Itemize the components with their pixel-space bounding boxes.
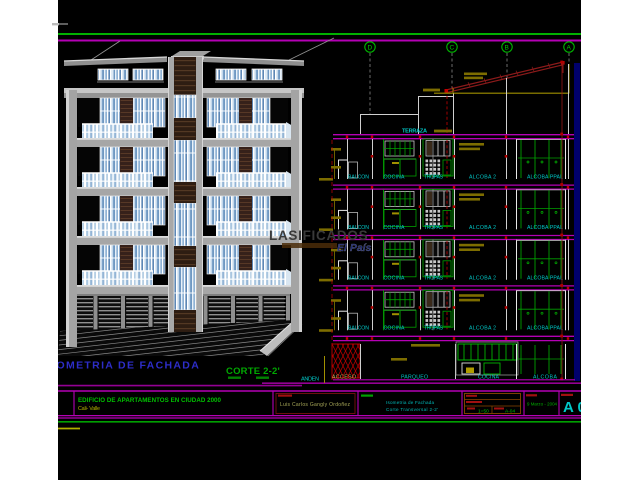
svg-text:Corte Transversal 2-2': Corte Transversal 2-2' <box>386 407 438 412</box>
svg-text:A-04: A-04 <box>505 409 515 415</box>
svg-text:A: A <box>567 45 572 52</box>
svg-text:C: C <box>450 45 455 52</box>
svg-text:EDIFICIO DE APARTAMENTOS EN C: EDIFICIO DE APARTAMENTOS EN CIUDAD 2000 <box>78 397 222 404</box>
svg-text:Luis Carlos Gangly Ordoñez: Luis Carlos Gangly Ordoñez <box>280 402 351 408</box>
svg-text:D: D <box>368 45 373 52</box>
svg-text:CORTE 2-2': CORTE 2-2' <box>226 366 281 377</box>
svg-text:9 Marzo - 2004: 9 Marzo - 2004 <box>527 402 558 407</box>
svg-text:ANDEN: ANDEN <box>301 377 319 383</box>
svg-text:LASIFICADOS: LASIFICADOS <box>269 228 368 243</box>
svg-text:ISOMETRIA DE FACHADA: ISOMETRIA DE FACHADA <box>44 360 200 372</box>
svg-text:B: B <box>505 45 509 52</box>
svg-text:El País: El País <box>337 242 372 254</box>
svg-text:1=50: 1=50 <box>478 409 489 415</box>
svg-text:TERRAZA: TERRAZA <box>402 129 427 135</box>
svg-text:Isometria de Fachada: Isometria de Fachada <box>386 400 434 405</box>
svg-text:Cali- Valle: Cali- Valle <box>78 406 100 412</box>
